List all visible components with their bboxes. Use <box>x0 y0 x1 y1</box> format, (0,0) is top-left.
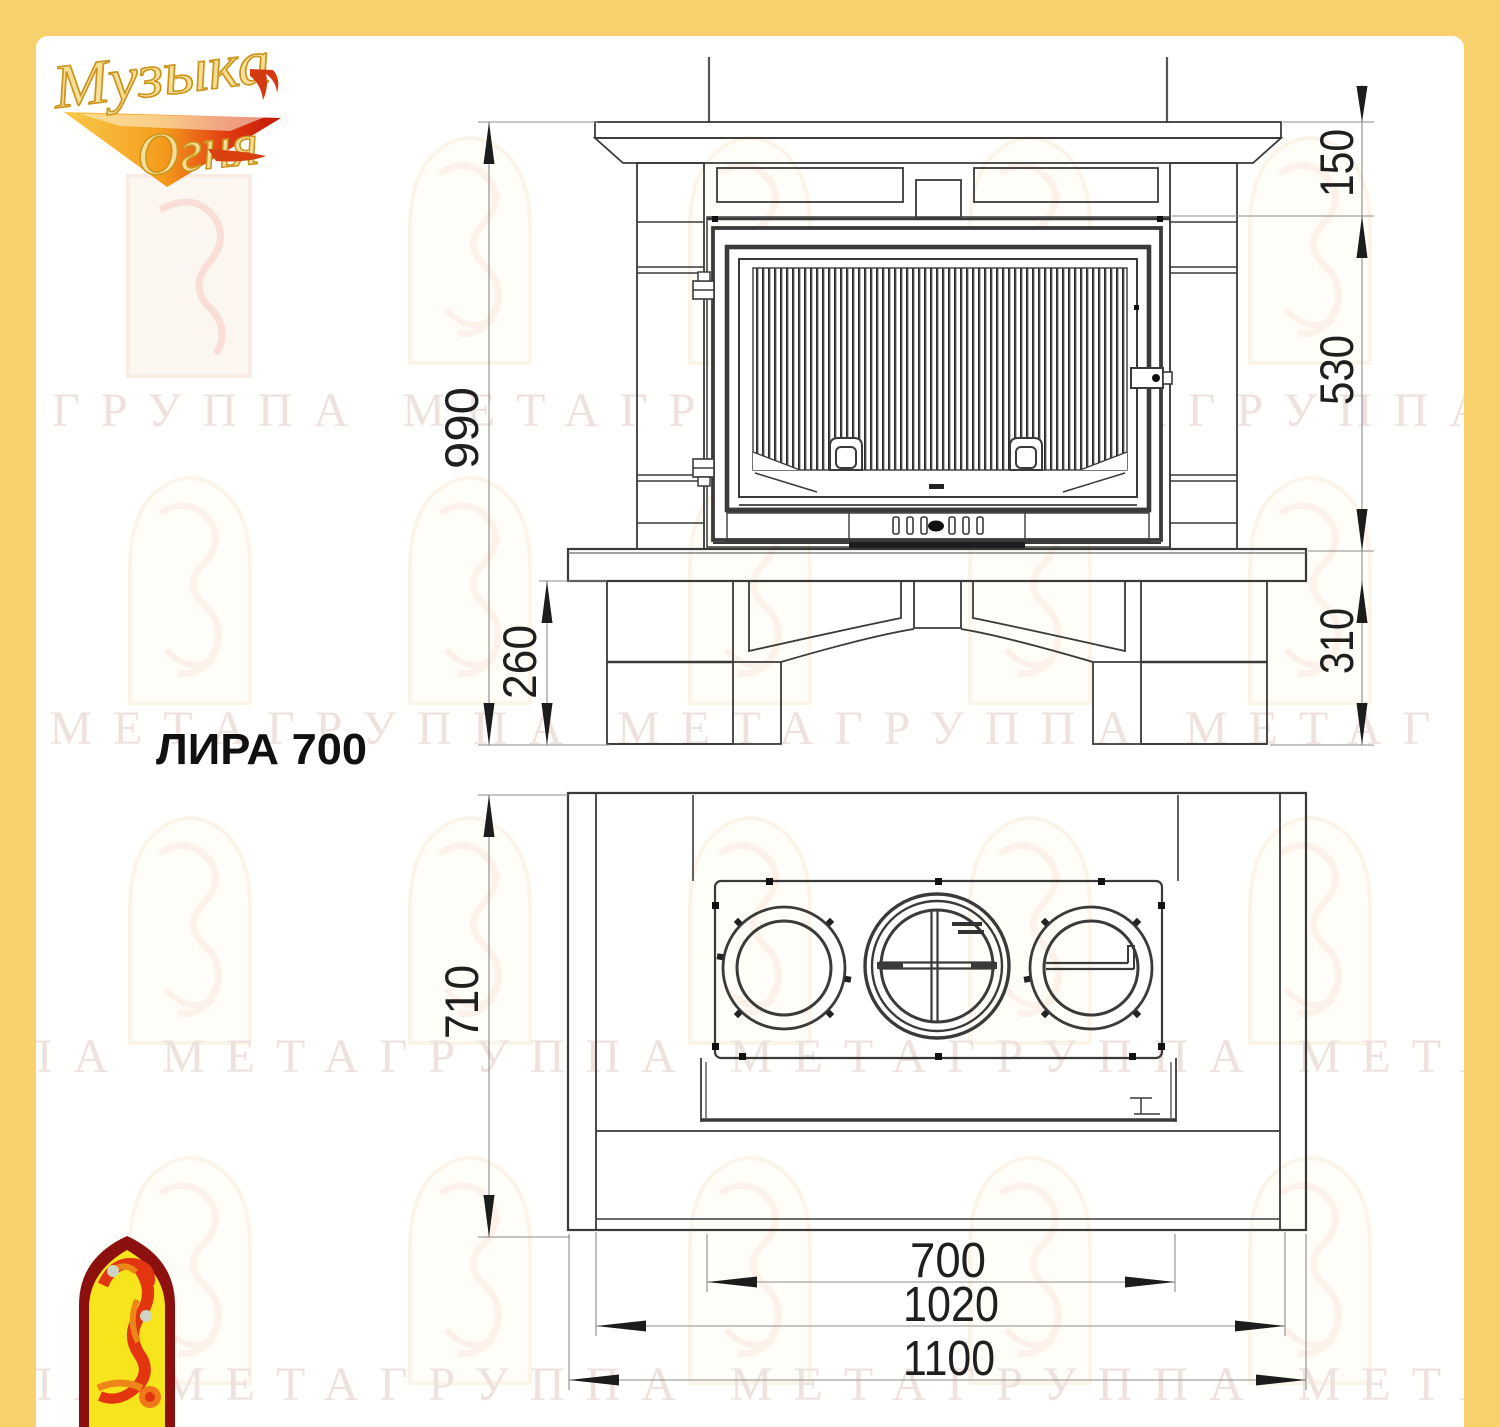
svg-text:ЛИРА 700: ЛИРА 700 <box>156 725 367 774</box>
svg-text:710: 710 <box>435 965 488 1039</box>
svg-text:1100: 1100 <box>903 1332 995 1386</box>
svg-text:260: 260 <box>493 625 546 699</box>
svg-text:990: 990 <box>435 387 488 469</box>
svg-text:1020: 1020 <box>903 1278 999 1332</box>
svg-text:530: 530 <box>1310 335 1363 405</box>
svg-text:310: 310 <box>1310 608 1363 674</box>
svg-text:Огня: Огня <box>133 111 261 189</box>
svg-text:ППА МЕТАГРУППА МЕТАГРУППА МЕТА: ППА МЕТАГРУППА МЕТАГРУППА МЕТА <box>0 1030 1500 1083</box>
svg-text:Музыка: Музыка <box>48 28 274 122</box>
svg-text:ППА МЕТАГРУППА МЕТАГРУППА МЕТА: ППА МЕТАГРУППА МЕТАГРУППА МЕТА <box>0 1358 1500 1411</box>
svg-text:150: 150 <box>1310 129 1363 197</box>
